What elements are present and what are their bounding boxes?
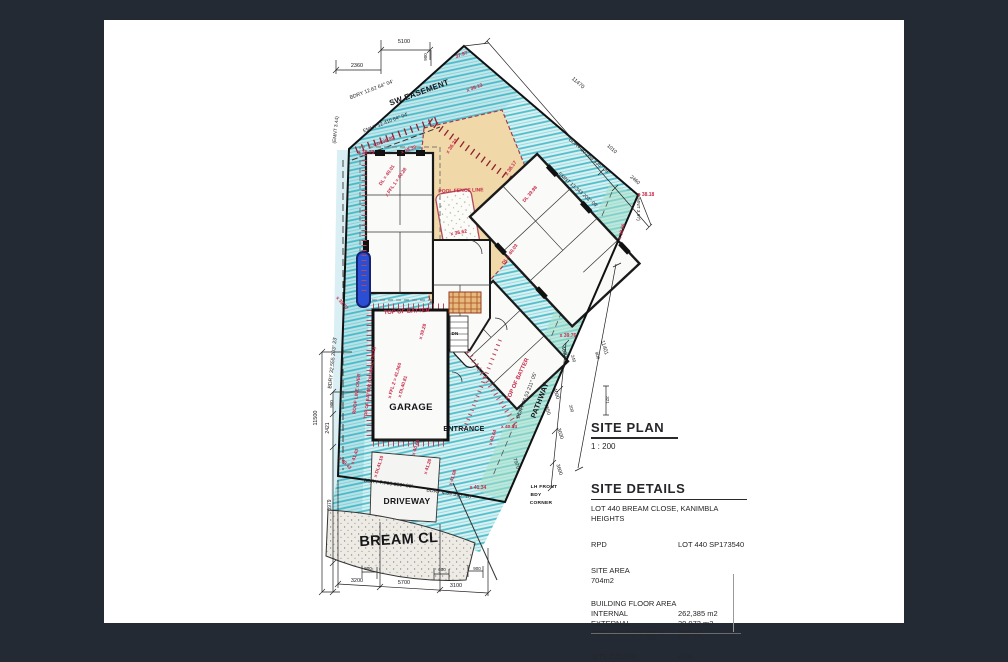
garage-outline — [373, 310, 448, 440]
annotation-dim: 11470 — [570, 76, 585, 90]
annotation-dim: 11500 — [313, 411, 319, 426]
annotation-dim: 3200 — [351, 578, 363, 584]
annotation-dim: 3979 — [327, 499, 333, 510]
annotation-dim: 600 — [438, 567, 446, 572]
annotation-label: CORNER — [530, 500, 553, 506]
annotation-bdry: (EMNT 3.44) — [332, 116, 341, 144]
bfa-label: EXTERNAL — [591, 619, 631, 628]
annotation-label: ENTRANCE — [443, 426, 484, 433]
table-rule-horizontal — [591, 633, 741, 634]
annotation-dim: 5100 — [398, 39, 410, 45]
annotation-label: DRIVEWAY — [384, 496, 431, 506]
annotation-level: x 40.84 — [501, 424, 517, 430]
annotation-dim: 900 — [473, 566, 481, 571]
bfa-value: 298 m2 — [678, 629, 703, 639]
bfa-row-total: TOTAL FLOOR AREA 298 m2 — [591, 629, 821, 639]
site-cover-value: 42% — [678, 652, 693, 662]
annotation-level: x 38.18 — [638, 192, 655, 198]
title-block: SITE PLAN 1 : 200 SITE DETAILS LOT 440 B… — [591, 419, 821, 662]
annotation-level: x 41.34 — [470, 485, 487, 491]
annotation-dim: 3100 — [450, 583, 462, 589]
annotation-level: x 39.76 — [560, 333, 577, 339]
house-left-wing — [363, 150, 433, 293]
annotation-dim: 5700 — [398, 580, 410, 586]
bfa-value: 30.072 m2 — [678, 619, 713, 629]
site-area-value: 704m2 — [591, 576, 614, 585]
bfa-heading-row: BUILDING FLOOR AREA — [591, 599, 821, 609]
rpd-row: RPD LOT 440 SP173540 — [591, 540, 821, 550]
rpd-value: LOT 440 SP173540 — [678, 540, 744, 550]
app-background: { "colors": { "background": "#232a33", "… — [0, 0, 1008, 640]
annotation-dim: 2460 — [628, 174, 640, 186]
site-area-label-row: SITE AREA — [591, 566, 821, 576]
site-details-heading: SITE DETAILS — [591, 481, 747, 500]
annotation-dim: 200 — [568, 404, 575, 413]
site-plan-title: SITE PLAN — [591, 420, 678, 439]
table-rule-vertical — [733, 574, 734, 632]
site-cover-row: SITE COVER 42% — [591, 652, 821, 662]
annotation-dim: 1010 — [605, 143, 617, 155]
scale-text: 1 : 200 — [591, 442, 821, 451]
annotation-dim: 900 — [329, 400, 334, 408]
annotation-bdry: BDRY 12.62 64° 04' — [349, 79, 394, 101]
annotation-dim: 3600 — [554, 464, 563, 477]
site-area-label: SITE AREA — [591, 566, 630, 575]
annotation-dim: 900 — [594, 351, 601, 360]
address-line-1: LOT 440 BREAM CLOSE, KANIMBLA — [591, 504, 751, 514]
address-line-2: HEIGHTS — [591, 514, 751, 524]
bfa-row-internal: INTERNAL 262,385 m2 — [591, 609, 821, 619]
annotation-label: LH FRONT — [531, 484, 558, 490]
annotation-dim: 2360 — [351, 63, 363, 69]
annotation-label: DN — [451, 331, 458, 336]
annotation-dim: 900 — [423, 53, 428, 61]
bfa-value: 262,385 m2 — [678, 609, 718, 619]
annotation-dim: 321 — [605, 396, 610, 404]
site-cover-label: SITE COVER — [591, 652, 636, 661]
annotation-label: GARAGE — [389, 402, 433, 413]
annotation-label: BDY — [530, 492, 542, 498]
rpd-label: RPD — [591, 540, 607, 549]
scanned-site-plan-page: SW EASEMENTGARAGEENTRANCEDRIVEWAYBREAM C… — [104, 20, 904, 623]
annotation-dim: 240 — [570, 354, 577, 363]
bfa-label: INTERNAL — [591, 609, 628, 618]
annotation-dim: 900 — [364, 566, 372, 571]
bfa-row-external: EXTERNAL 30.072 m2 — [591, 619, 821, 629]
annotation-dim: 2421 — [325, 422, 331, 433]
site-area-value-row: 704m2 — [591, 576, 821, 586]
bfa-heading: BUILDING FLOOR AREA — [591, 599, 676, 608]
annotation-level: x 38.73 — [358, 150, 375, 156]
